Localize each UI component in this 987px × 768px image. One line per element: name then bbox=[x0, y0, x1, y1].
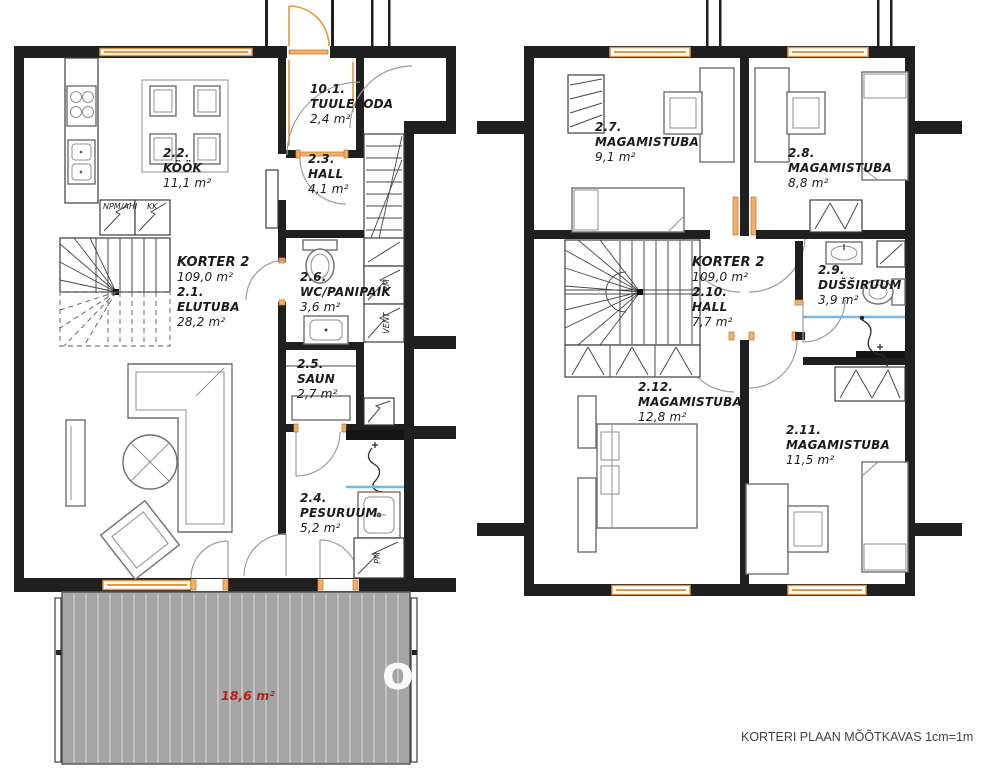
nightstand-icon bbox=[578, 478, 596, 552]
bedroom-211-furniture bbox=[746, 367, 908, 574]
apartment-label-floor2: KORTER 2 109,0 m² 2.10. HALL 7,7 m² bbox=[692, 255, 765, 330]
desk-icon bbox=[746, 484, 788, 574]
room-label-dussiruum: 2.9. DUŠŠIRUUM 3,9 m² bbox=[818, 263, 902, 308]
nightstand-icon bbox=[578, 396, 596, 448]
floorplan-drawing bbox=[0, 0, 987, 768]
watermark-fragment: o bbox=[382, 650, 416, 696]
room-label-magamistuba-27: 2.7. MAGAMISTUBA 9,1 m² bbox=[595, 120, 699, 165]
closet-label-pm-washer: PM bbox=[373, 538, 385, 578]
desk-icon bbox=[755, 68, 789, 162]
stairs-second-floor bbox=[565, 240, 700, 345]
room-label-pesuruum: 2.4. PESURUUM 5,2 m² bbox=[300, 491, 378, 536]
room-label-magamistuba-211: 2.11. MAGAMISTUBA 11,5 m² bbox=[786, 423, 890, 468]
bed-icon bbox=[572, 188, 684, 232]
room-label-tuulekoda: 10.1. TUULEKODA 2,4 m² bbox=[310, 82, 393, 127]
stairs-main bbox=[60, 238, 170, 346]
wardrobe-hall bbox=[565, 345, 700, 377]
room-label-magamistuba-28: 2.8. MAGAMISTUBA 8,8 m² bbox=[788, 146, 892, 191]
sideboard-icon bbox=[66, 420, 85, 506]
room-label-wc-panipaik: 2.6. WC/PANIPAIK 3,6 m² bbox=[300, 270, 391, 315]
room-label-kook: 2.2. KÖÖK 11,1 m² bbox=[163, 146, 211, 191]
bed-icon bbox=[862, 462, 908, 572]
closet-label-pm: PM bbox=[382, 265, 394, 305]
armchair-icon bbox=[101, 501, 180, 580]
room-label-hall-1: 2.3. HALL 4,1 m² bbox=[308, 152, 349, 197]
apartment-label-floor1: KORTER 2 109,0 m² 2.1. ELUTUBA 28,2 m² bbox=[177, 255, 250, 330]
closet-label-kk: KK bbox=[147, 202, 158, 211]
floorplan-page: 10.1. TUULEKODA 2,4 m² 2.2. KÖÖK 11,1 m²… bbox=[0, 0, 987, 768]
closet-label-vent: VENT bbox=[382, 303, 394, 343]
terrace-area-label: 18,6 m² bbox=[221, 688, 275, 703]
room-label-saun: 2.5. SAUN 2,7 m² bbox=[297, 357, 338, 402]
room-label-magamistuba-212: 2.12. MAGAMISTUBA 12,8 m² bbox=[638, 380, 742, 425]
closet-label-npm-ahi: NPM/AHI bbox=[103, 202, 137, 211]
terrace bbox=[55, 592, 417, 764]
desk-icon bbox=[700, 68, 734, 162]
stove-icon bbox=[67, 86, 96, 126]
scale-caption: KORTERI PLAAN MÕÕTKAVAS 1cm=1m bbox=[741, 730, 973, 744]
